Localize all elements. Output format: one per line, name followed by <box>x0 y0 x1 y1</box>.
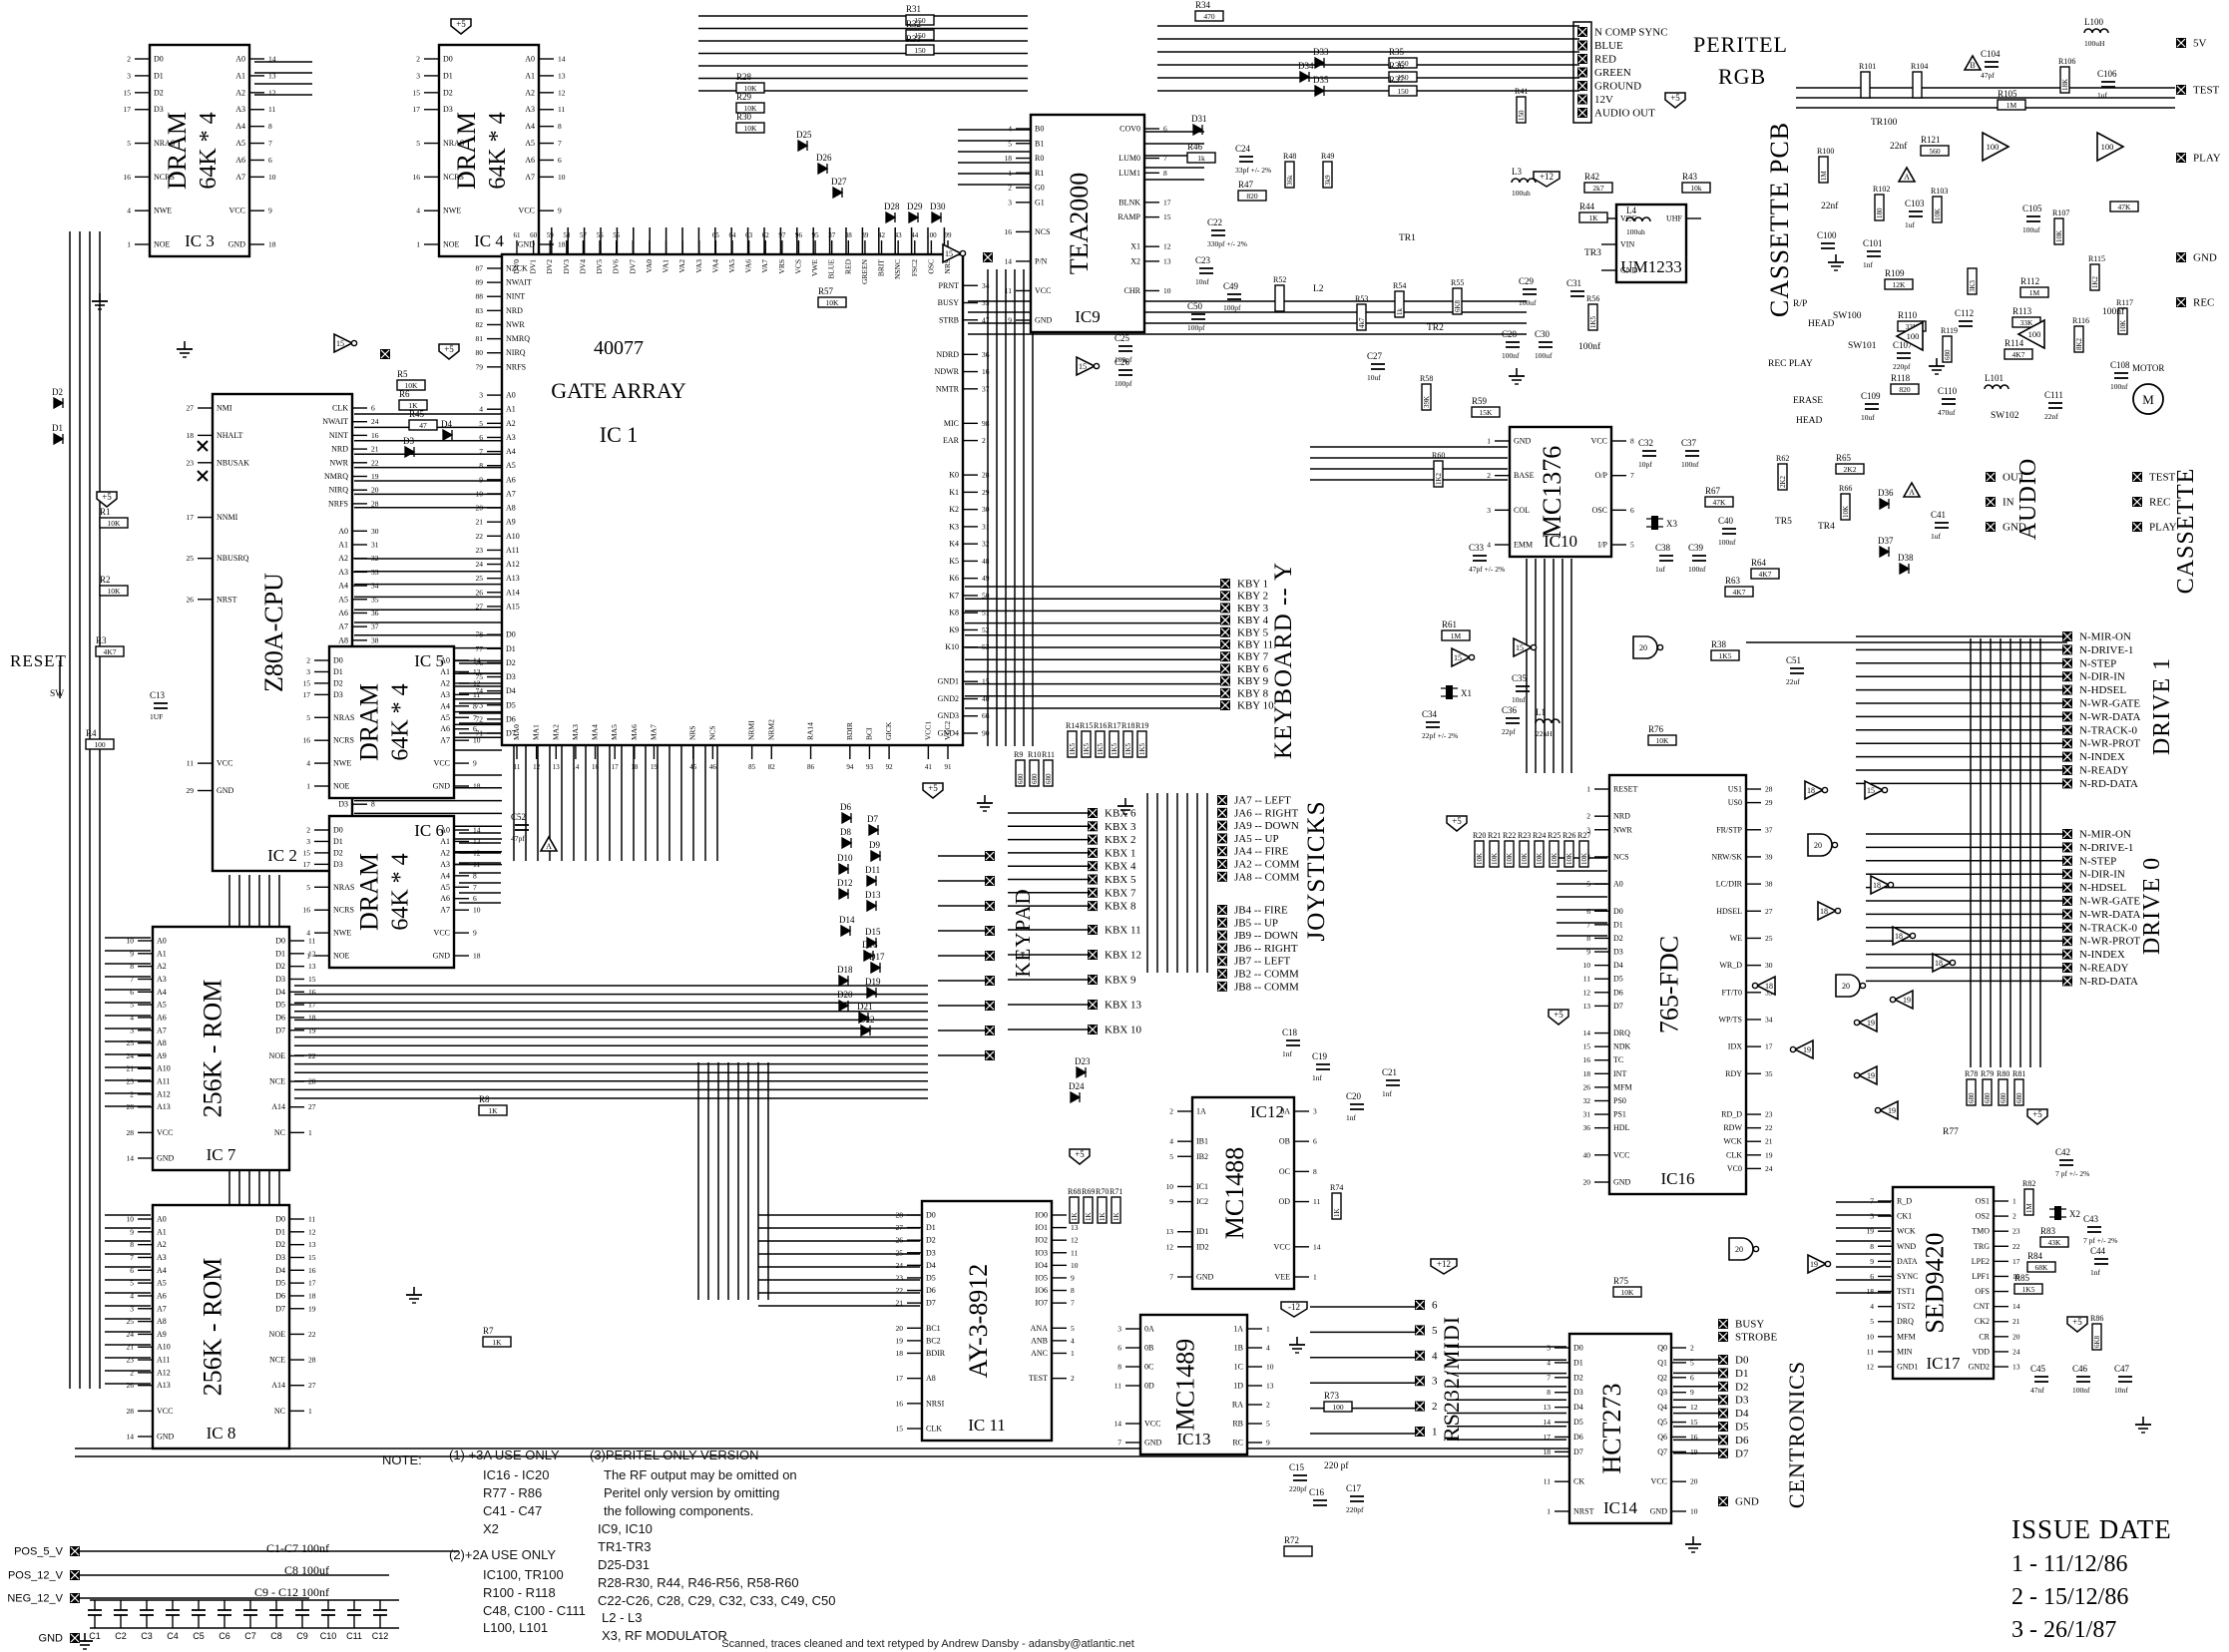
pin-number: 9 <box>1071 1273 1075 1282</box>
pin-number: 13 <box>473 837 481 846</box>
pin-label: A1 <box>338 540 348 549</box>
pin-number: 8 <box>268 122 272 131</box>
terminal-icon <box>2062 631 2072 641</box>
terminal-icon <box>2062 698 2072 708</box>
ic-ic17: SED9420IC177R_D3CK119WCK8WND9DATA6SYNC18… <box>1867 1187 2020 1379</box>
terminal-label: STROBE <box>1735 1332 1777 1344</box>
part-value: 100uh <box>1512 189 1531 198</box>
part-r121: R121560 <box>1921 135 1949 156</box>
ic-ic14: HCT273IC143D04D17D28D313D414D517D618D711… <box>1544 1334 1698 1523</box>
pin-label: HDSEL <box>1716 907 1742 916</box>
part-value: 100uH <box>2084 39 2105 48</box>
part: 47K <box>2110 202 2138 211</box>
pin-number: 19 <box>308 1026 316 1034</box>
part-label: R20 <box>1473 831 1486 840</box>
part-value: 1K <box>492 1338 502 1347</box>
terminal-label: N-WR-GATE <box>2079 698 2140 710</box>
part-value: 1uf <box>1655 565 1666 574</box>
part-r-p: R/P <box>1793 299 1807 309</box>
part-c32: C3210pf <box>1638 438 1656 469</box>
pin-label: A2 <box>506 419 516 428</box>
part-value: 220pf <box>1289 1484 1307 1493</box>
pin-number: 17 <box>1765 1042 1773 1051</box>
part-label: TR4 <box>1818 522 1835 532</box>
part-r104: R104 <box>1911 62 1928 98</box>
terminal-label: JB8 -- COMM <box>1234 981 1299 993</box>
pin-label: D2 <box>154 88 164 97</box>
pin-label: LPF1 <box>1972 1272 1990 1281</box>
part-value: 1k <box>1197 154 1205 163</box>
part-value: 1K <box>1071 1212 1079 1221</box>
part-label: R32 <box>906 19 921 29</box>
part-label: C110 <box>1938 386 1958 396</box>
pin-label: D3 <box>333 860 343 869</box>
pin-label: Q1 <box>1657 1358 1667 1367</box>
part-label: D14 <box>839 915 855 925</box>
pin-number: 17 <box>1544 1433 1552 1442</box>
part-value: 1K5 <box>1124 742 1132 755</box>
pin-number: 6 <box>1870 1272 1874 1281</box>
pin-number: 26 <box>1583 1082 1591 1091</box>
pin-label: K2 <box>949 505 959 514</box>
part-label: C25 <box>1114 333 1130 343</box>
part-a: A <box>541 837 557 851</box>
pin-label: CNT <box>1974 1302 1990 1311</box>
pin-label: A8 <box>338 635 348 644</box>
pin-number: 7 <box>1870 1197 1874 1206</box>
pin-label: VCS <box>793 259 802 274</box>
pin-number: 17 <box>124 105 132 114</box>
terminal-label: KBX 2 <box>1105 834 1135 846</box>
pin-number: 35 <box>1765 1069 1773 1078</box>
pin-number: 5 <box>1071 1324 1075 1333</box>
part-value: 10uf <box>1367 373 1381 382</box>
pin-number: 12 <box>308 1227 316 1236</box>
pin-number: 9 <box>268 206 272 215</box>
pin-number: 5 <box>1169 1152 1173 1161</box>
pin-number: 3 <box>130 1026 134 1034</box>
part-label: R68 <box>1068 1187 1081 1196</box>
pin-number: 18 <box>1544 1447 1552 1456</box>
gate-number: 100 <box>1907 331 1920 341</box>
pin-label: D0 <box>333 656 343 665</box>
pin-number: 4 <box>479 405 483 414</box>
part-d11: D11 <box>865 865 880 886</box>
part-label: C30 <box>1535 329 1551 339</box>
terminal-icon <box>1718 1368 1728 1378</box>
pin-number: 59 <box>547 231 555 239</box>
pin-number: 24 <box>127 1051 135 1060</box>
pin-label: RB <box>1232 1420 1243 1429</box>
part-label: R81 <box>2012 1069 2025 1078</box>
pin-label: NRST <box>1573 1507 1594 1516</box>
part-label: R69 <box>1082 1187 1095 1196</box>
pin-number: 11 <box>1583 975 1590 984</box>
section-label-drive-0: DRIVE 0 <box>2139 857 2165 955</box>
pin-label: BLUE <box>827 259 836 279</box>
part-value: 1M <box>1451 631 1462 640</box>
terminal-icon <box>1217 918 1227 928</box>
terminal-icon <box>985 901 995 911</box>
terminal-icon <box>1088 975 1098 985</box>
part-tr5: TR5 <box>1775 517 1792 527</box>
part-label: R5 <box>397 369 408 379</box>
section-label-drive-1: DRIVE 1 <box>2149 657 2175 755</box>
gate-number: 100 <box>2028 329 2041 339</box>
part-value: 180 <box>1876 207 1884 218</box>
part-c49: C49100pf <box>1223 281 1241 312</box>
terminal-label: D2 <box>1735 1381 1748 1393</box>
terminal-icon <box>1718 1319 1728 1329</box>
pin-label: A6 <box>157 1013 167 1022</box>
pin-number: 27 <box>476 602 484 611</box>
part-label: R45 <box>409 409 425 419</box>
pin-number: 16 <box>982 367 990 376</box>
terminal-label: N-INDEX <box>2079 949 2125 961</box>
section-label-cassette-pcb: CASSETTE PCB <box>1765 122 1794 317</box>
pin-label: D3 <box>275 975 285 984</box>
part-value: 1nf <box>1312 1073 1323 1082</box>
pin-label: GND3 <box>938 711 959 720</box>
part-d6: D6 <box>840 802 851 823</box>
pin-label: CHR <box>1124 286 1141 295</box>
part-r55: R556K8 <box>1451 278 1464 314</box>
part-value: 1K2 <box>1435 472 1443 485</box>
terminal-label: KBX 11 <box>1105 925 1141 937</box>
part-label: C22 <box>1207 217 1222 227</box>
part-label: 100nf <box>2102 306 2125 317</box>
pin-number: 7 <box>1586 920 1590 929</box>
terminal-label: N-WR-DATA <box>2079 909 2140 921</box>
pin-label: BCI <box>864 727 873 740</box>
pin-number: 28 <box>982 471 990 480</box>
pin-label: A3 <box>440 860 450 869</box>
terminal-icon <box>1088 950 1098 960</box>
terminal-icon <box>1220 688 1230 698</box>
pin-label: A2 <box>525 88 535 97</box>
part-l2: L2 <box>1313 284 1324 294</box>
pin-label: DV7 <box>628 259 637 274</box>
section-label-rs232-midi: RS232/MIDI <box>1439 1316 1464 1442</box>
warning-letter: A <box>546 842 552 851</box>
part-label: R22 <box>1503 831 1516 840</box>
cap-note: C9 - C12 100nf <box>254 1585 329 1599</box>
part-sw101: SW101 <box>1848 341 1877 351</box>
pin-label: D1 <box>926 1223 936 1232</box>
terminal-icon <box>1217 943 1227 953</box>
section-label-keyboard-y: KEYBOARD -- Y <box>1270 562 1297 759</box>
part-label: C16 <box>1309 1487 1325 1497</box>
pin-label: A12 <box>506 560 520 569</box>
pin-number: 19 <box>1867 1227 1875 1236</box>
part-d25: D25 <box>796 130 812 151</box>
part-r28: R2810K <box>736 72 764 93</box>
pin-number: 5 <box>127 139 131 148</box>
part-label: C17 <box>1346 1483 1362 1493</box>
pin-number: 38 <box>1765 880 1773 889</box>
part-label: R/P <box>1793 299 1807 309</box>
part-label: L2 <box>1313 284 1324 294</box>
pin-label: D5 <box>1573 1418 1583 1427</box>
part-label: R119 <box>1941 326 1958 335</box>
ic-id: IC13 <box>1177 1430 1211 1448</box>
pin-label: VEE <box>1274 1273 1290 1282</box>
pin-number: 13 <box>1583 1002 1591 1011</box>
part-r80: R80680 <box>1997 1069 2009 1105</box>
pin-number: 34 <box>1765 1015 1773 1024</box>
pin-label: NCE <box>269 1077 285 1086</box>
part-label: C26 <box>1114 357 1130 367</box>
part <box>983 252 993 262</box>
pin-number: 5 <box>130 1279 134 1288</box>
pin-label: VCC <box>1144 1420 1160 1429</box>
part-value: 47pf <box>1981 71 1995 80</box>
part-value: 47nf <box>2030 1386 2044 1395</box>
pin-label: CLK <box>926 1425 942 1434</box>
part-value: 100nf <box>1688 565 1706 574</box>
terminal-label: N-READY <box>2079 765 2129 777</box>
part-label: L4 <box>1626 206 1636 215</box>
pin-number: 9 <box>473 929 477 938</box>
pin-label: VCC <box>1035 286 1051 295</box>
pin-label: K0 <box>949 471 959 480</box>
pin-label: GND <box>1196 1273 1214 1282</box>
pin-number: 20 <box>1583 1178 1591 1187</box>
pin-label: NRW/SK <box>1711 852 1742 861</box>
part-label: R37 <box>1389 75 1405 85</box>
pin-label: A0 <box>157 937 167 946</box>
pin-number: 5 <box>1586 880 1590 889</box>
terminal-label: JA9 -- DOWN <box>1234 820 1299 832</box>
part-label: D25 <box>796 130 812 140</box>
terminal-icon <box>1220 676 1230 686</box>
part-r56: R561K5 <box>1586 294 1599 330</box>
motor-m: M <box>2142 392 2154 407</box>
pin-label: NNMI <box>217 513 238 522</box>
terminal-label: KBX 7 <box>1105 887 1136 899</box>
part-c43: C437 pf +/- 2% <box>2083 1214 2117 1245</box>
part-label: R101 <box>1859 62 1876 71</box>
part-label: R2 <box>100 575 111 585</box>
pin-number: 12 <box>473 678 481 687</box>
pin-label: SYNC <box>1897 1272 1918 1281</box>
pin-label: D4 <box>506 686 516 695</box>
part-label: 22nf <box>1890 141 1908 152</box>
part-label: R105 <box>1998 89 2017 99</box>
ic-ic6: DRAM64K * 4IC 62D03D115D217D35NRAS16NCRS… <box>303 816 481 968</box>
pin-label: NCRS <box>333 736 354 745</box>
pin-number: 21 <box>476 518 484 527</box>
pin-number: 4 <box>1266 1344 1270 1353</box>
pin-number: 11 <box>268 105 275 114</box>
pin-number: 23 <box>896 1273 904 1282</box>
pin-label: K5 <box>949 557 959 566</box>
pin-label: VA3 <box>694 259 703 273</box>
pin-number: 49 <box>982 574 990 583</box>
terminal-label: 1 <box>1432 1427 1438 1439</box>
pin-label: A2 <box>338 554 348 563</box>
pin-label: 0D <box>1144 1382 1154 1391</box>
pin-number: 6 <box>558 156 562 165</box>
pin-number: 7 <box>558 139 562 148</box>
pin-number: 27 <box>187 404 195 413</box>
part-label: R9 <box>1014 750 1023 759</box>
terminal-icon <box>1217 905 1227 915</box>
pin-number: 3 <box>479 391 483 400</box>
pin-label: NCRS <box>443 173 464 182</box>
pin-label: X2 <box>1130 256 1140 265</box>
pin-label: D7 <box>1613 1002 1623 1011</box>
terminal-icon <box>1577 108 1587 118</box>
terminal-icon <box>2062 856 2072 866</box>
part-c40: C40100nf <box>1718 516 1736 547</box>
part-value: 680 <box>2015 1092 2023 1103</box>
terminal-label: KBX 10 <box>1105 1025 1141 1036</box>
terminal-label: D7 <box>1735 1447 1749 1459</box>
pin-label: NDK <box>1613 1042 1631 1051</box>
pin-label: EMM <box>1514 541 1533 550</box>
terminal-icon <box>380 349 390 359</box>
pin-label: RDY <box>1725 1069 1742 1078</box>
part-label: R58 <box>1420 374 1433 383</box>
gate-inv-15: 15 <box>1514 638 1537 656</box>
pin-number: 9 <box>1169 1197 1173 1206</box>
pin-number: 5 <box>479 419 483 428</box>
pin-number: 15 <box>1163 212 1171 221</box>
terminals-keyboard-y: KBY 1KBY 2KBY 3KBY 4KBY 5KBY 11KBY 7KBY … <box>1220 579 1274 712</box>
terminals-joystick-a: JA7 -- LEFTJA6 -- RIGHTJA9 -- DOWNJA5 --… <box>1217 795 1300 884</box>
issue-line: 1 - 11/12/86 <box>2011 1551 2172 1578</box>
part-label: R28 <box>736 72 752 82</box>
terminal-icon <box>1217 859 1227 869</box>
pin-number: 6 <box>1117 1344 1121 1353</box>
part-value: 1K5 <box>1111 742 1118 755</box>
pin-number: 28 <box>371 499 379 508</box>
part-value: 47pf +/- 2% <box>1469 565 1505 574</box>
pin-label: BC2 <box>926 1336 941 1345</box>
pin-label: D6 <box>275 1291 285 1300</box>
pin-label: NRAS <box>154 139 175 148</box>
part-d9: D9 <box>869 840 880 861</box>
pin-number: 10 <box>1583 961 1591 970</box>
part-value: 220pf <box>1893 362 1911 371</box>
pin-label: IO1 <box>1036 1223 1048 1232</box>
terminal-label: JA2 -- COMM <box>1234 859 1300 871</box>
pin-number: 1 <box>1487 437 1491 446</box>
part-d36: D36 <box>1878 488 1894 509</box>
cap-note: C1-C7 100nf <box>266 1541 329 1555</box>
part-value: 220pf <box>1346 1505 1364 1514</box>
part-label: D16 <box>862 940 878 950</box>
decoupling-caps: C1C2C3C4C5C6C7C8C9C10C11C12C1-C7 100nfC8… <box>88 1541 388 1641</box>
pin-label: MIN <box>1897 1347 1913 1356</box>
pin-number: 20 <box>476 504 484 513</box>
pin-number: 18 <box>896 1349 904 1358</box>
terminal-label: KBY 7 <box>1237 651 1269 663</box>
terminal-label: N-DRIVE-1 <box>2079 644 2133 656</box>
pin-label: Q4 <box>1657 1403 1667 1412</box>
part-value: 1uf <box>2097 91 2108 100</box>
terminal-icon <box>1718 1409 1728 1419</box>
pin-number: 6 <box>268 156 272 165</box>
pin-label: VA5 <box>727 259 736 273</box>
part-tr4: TR4 <box>1818 522 1835 532</box>
pin-label: D7 <box>275 1304 285 1313</box>
part-r52: R52 <box>1273 275 1286 311</box>
pin-number: 32 <box>982 540 990 549</box>
pin-number: 14 <box>268 55 276 64</box>
gate-number: 20 <box>1814 841 1822 850</box>
part-label: C43 <box>2083 1214 2099 1224</box>
part-r22: R2210K <box>1503 831 1516 867</box>
pin-label: NINT <box>506 292 525 301</box>
part-label: D26 <box>816 153 832 163</box>
part-label: R27 <box>1577 831 1590 840</box>
pin-number: 13 <box>1071 1223 1079 1232</box>
terminal-label: 5 <box>1432 1325 1438 1337</box>
pin-number: 19 <box>651 763 659 771</box>
terminal-label: KBX 5 <box>1105 874 1136 886</box>
pin-number: 26 <box>476 588 484 597</box>
pin-number: 17 <box>308 1001 316 1010</box>
pin-label: NRD <box>331 445 348 454</box>
terminal-icon <box>1718 1332 1728 1342</box>
pin-label: D5 <box>926 1273 936 1282</box>
cap-label: C6 <box>219 1631 230 1641</box>
warning-letter: A <box>1904 173 1910 182</box>
terminal-icon <box>1088 861 1098 871</box>
terminal-label: BLUE <box>1594 40 1623 52</box>
part-label: C108 <box>2110 360 2130 370</box>
part-label: C100 <box>1817 230 1837 240</box>
part-label: D34 <box>1298 61 1314 71</box>
ic-name2: GATE ARRAY <box>551 378 686 403</box>
part-label: R64 <box>1751 558 1767 568</box>
part-d1: D1 <box>52 423 63 444</box>
pin-label: GREEN <box>860 258 869 284</box>
pin-label: D3 <box>275 1253 285 1262</box>
part-r71: R711K <box>1110 1187 1122 1223</box>
pin-number: 2 <box>1071 1374 1075 1383</box>
part-l1: L122uH <box>1536 707 1560 738</box>
pin-number: 40 <box>1583 1150 1591 1159</box>
part-value: 100 <box>94 740 106 749</box>
pin-label: D2 <box>1613 934 1623 943</box>
terminal-icon <box>2176 297 2186 307</box>
part-label: D22 <box>859 1015 875 1025</box>
cap-label: C9 <box>296 1631 308 1641</box>
pin-label: BLNK <box>1118 198 1140 206</box>
part-label: C20 <box>1346 1091 1362 1101</box>
terminal-label: POS_5_V <box>14 1546 64 1558</box>
terminal-label: GND <box>2193 252 2217 264</box>
gate-inv-15: 15 <box>1452 648 1475 666</box>
note3-line: IC9, IC10 <box>590 1520 835 1538</box>
pin-number: 40 <box>982 694 990 703</box>
terminal-label: KBY 5 <box>1237 626 1269 638</box>
part-r41: R41150 <box>1515 87 1528 123</box>
pin-label: A11 <box>157 1356 170 1365</box>
pin-number: 17 <box>612 763 620 771</box>
part <box>198 471 208 481</box>
cap-label: C12 <box>372 1631 389 1641</box>
part <box>380 349 390 359</box>
pin-label: NHALT <box>217 431 242 440</box>
part-value: 2k7 <box>1592 184 1604 193</box>
ic-ic10: MC1376IC101GND2BASE3COL4EMM8VCC7O/P6OSC5… <box>1487 427 1634 557</box>
pin-number: 77 <box>476 644 484 653</box>
pin-label: A4 <box>157 988 167 997</box>
